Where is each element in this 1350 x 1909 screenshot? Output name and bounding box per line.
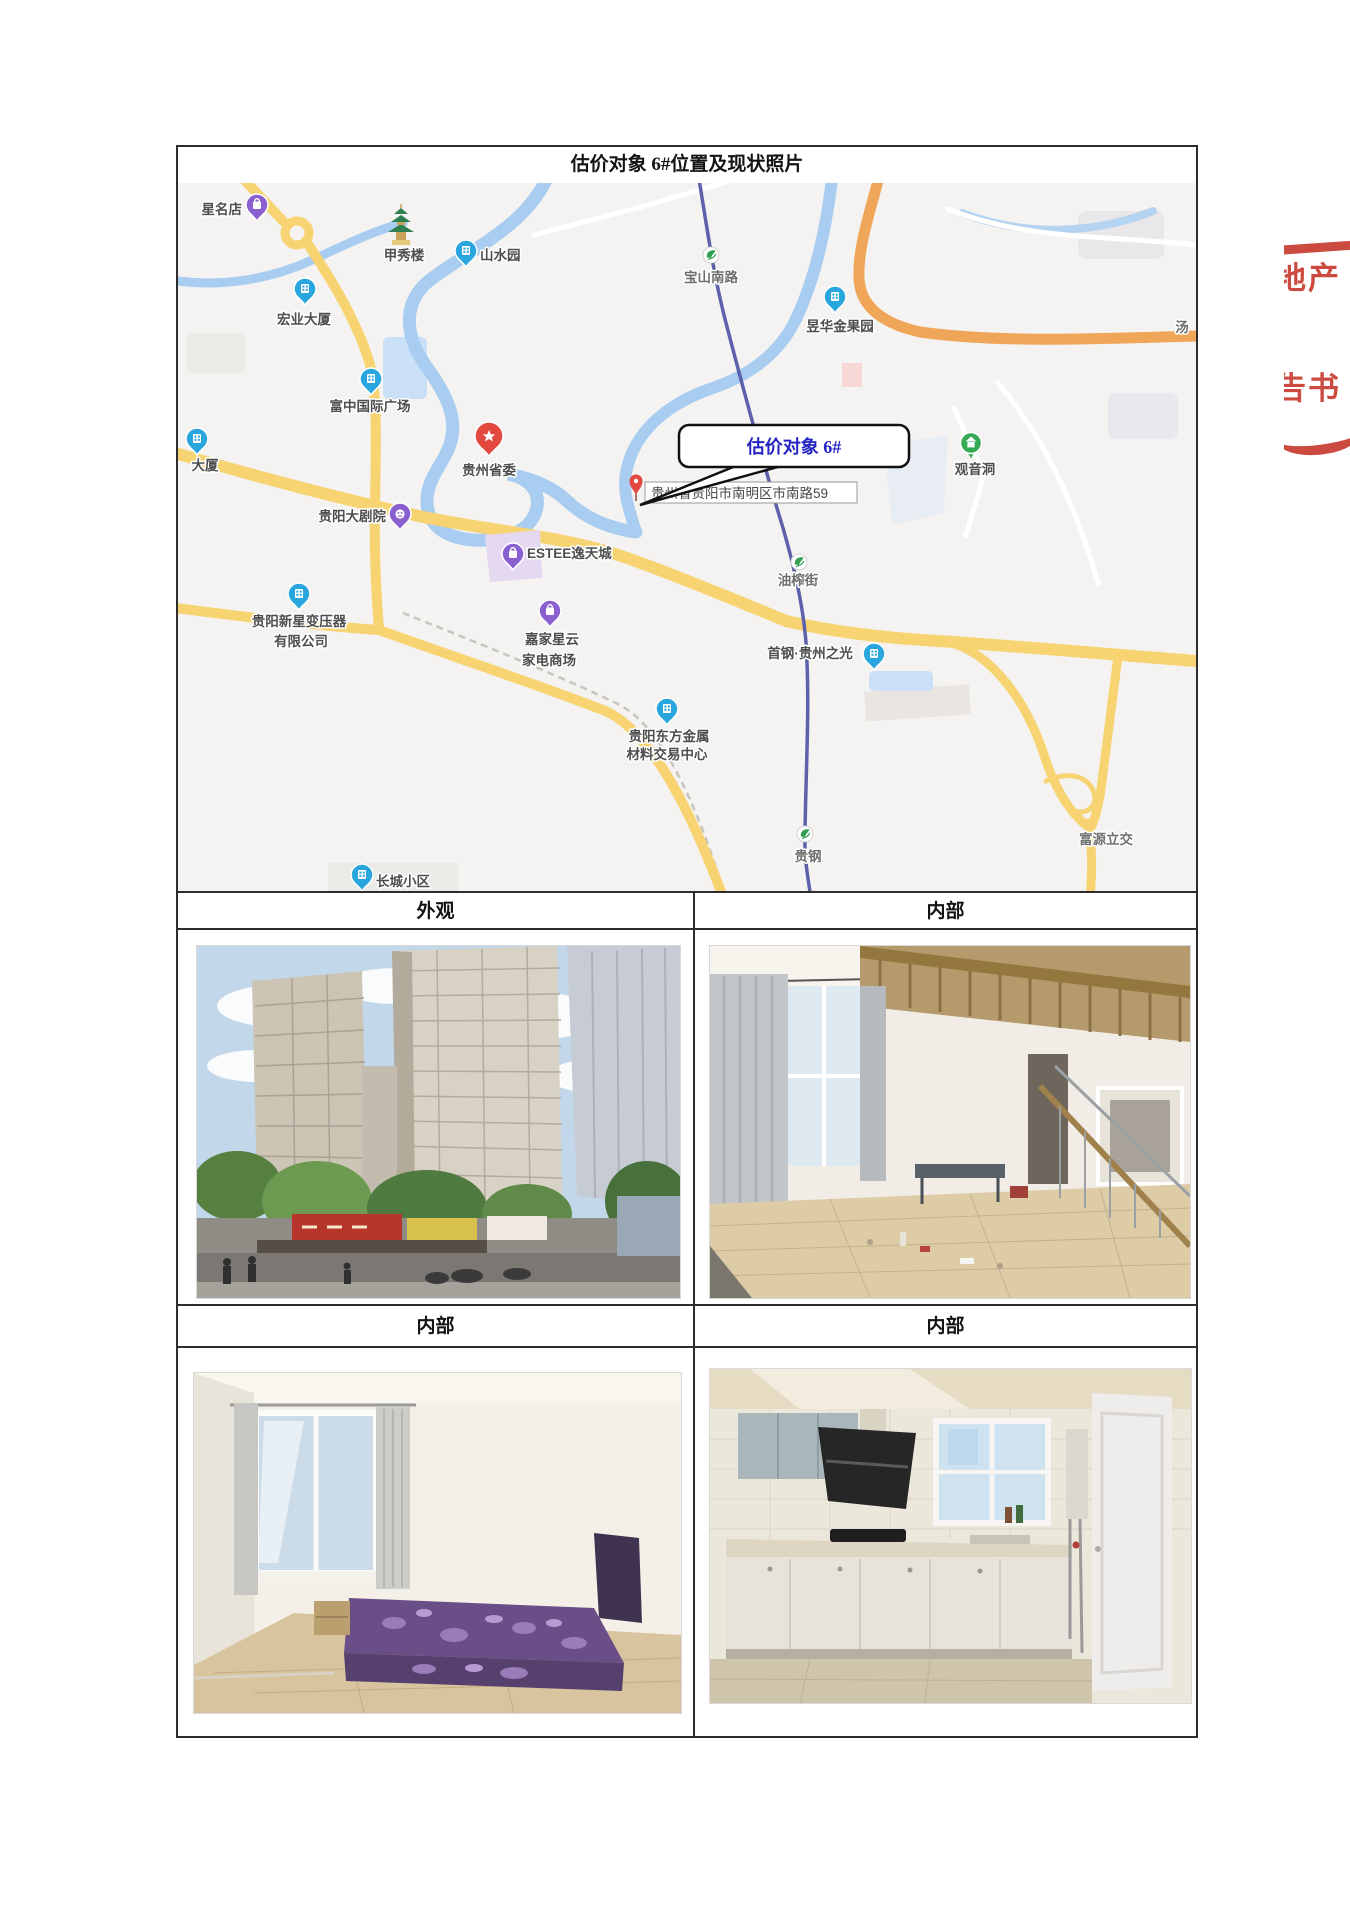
poi-label: 星名店: [202, 201, 243, 217]
gas-stove: [830, 1529, 906, 1542]
poi-label: ESTEE逸天城: [527, 545, 612, 561]
poi-label: 山水园: [480, 247, 521, 263]
building-pin-icon: [294, 278, 316, 305]
map-highway: [859, 183, 1196, 339]
photo-interior-loft: [709, 945, 1191, 1299]
poi-label: 首钢·贵州之光: [767, 645, 853, 661]
kitchen-door: [1092, 1393, 1172, 1691]
shop-pin-icon: [246, 194, 268, 221]
photo-bedroom: [193, 1372, 682, 1714]
poi-label: 材料交易中心: [627, 746, 708, 762]
photo-exterior-image: [197, 946, 680, 1298]
header-interior-3: 内部: [695, 1310, 1196, 1344]
map-roads: [178, 183, 1196, 891]
divider-rowA: [178, 1304, 1196, 1306]
store-pin-icon: [539, 600, 561, 627]
poi-label: 嘉家星云: [524, 631, 579, 647]
divider-headerA: [178, 928, 1196, 930]
photo-interior-loft-image: [710, 946, 1190, 1298]
poi-label: 贵州省委: [462, 462, 516, 478]
road-label: 宝山南路: [684, 269, 738, 285]
divider-headerB: [178, 1346, 1196, 1348]
header-interior-1: 内部: [695, 896, 1196, 928]
photo-exterior: [196, 945, 681, 1299]
header-interior-2: 内部: [178, 1310, 693, 1344]
seal-text-line1: 地产: [1284, 253, 1341, 298]
building-pin-icon: [863, 643, 885, 670]
government-pin-icon: [475, 422, 503, 456]
map-city-blocks: [186, 211, 1178, 891]
poi-label: 富中国际广场: [330, 398, 411, 414]
map-canvas: 星名店 甲秀楼 山水园 宝山南路 宏业大厦 昱华金果园 汤 富中国际广场 大厦 …: [178, 183, 1196, 891]
wood-floor: [710, 1184, 1190, 1298]
poi-label: 宏业大厦: [277, 311, 331, 327]
building-pin-icon: [824, 286, 846, 313]
bedroom-window: [230, 1403, 416, 1595]
photo-bedroom-image: [194, 1373, 681, 1713]
metro-station-icon: [703, 247, 719, 263]
poi-label: 贵阳新星变压器: [252, 613, 347, 629]
kitchen-window: [936, 1421, 1048, 1523]
poi-label: 贵阳东方金属: [629, 728, 710, 744]
photo-kitchen-image: [710, 1369, 1191, 1703]
page-title: 估价对象 6#位置及现状照片: [178, 150, 1196, 180]
road-label: 汤: [1175, 320, 1189, 335]
poi-label: 大厦: [192, 457, 219, 473]
road-label: 贵钢: [795, 848, 822, 864]
poi-label: 观音洞: [955, 461, 996, 477]
callout-text: 估价对象 6#: [746, 436, 842, 457]
poi-label: 长城小区: [376, 873, 430, 889]
photo-kitchen: [709, 1368, 1192, 1704]
poi-label: 甲秀楼: [384, 247, 425, 263]
seal-border-arc: [1284, 411, 1350, 458]
poi-label: 有限公司: [274, 633, 328, 649]
temple-pin-icon: [961, 433, 982, 459]
red-seal-fragment: 地产 告书: [1284, 203, 1350, 458]
poi-label: 家电商场: [522, 652, 576, 668]
theater-pin-icon: [389, 503, 411, 530]
divider-map-bottom: [178, 891, 1196, 893]
company-pin-icon: [288, 583, 310, 610]
poi-label: 昱华金果园: [806, 318, 874, 334]
counter-and-cabinets: [726, 1529, 1072, 1659]
report-page: 估价对象 6#位置及现状照片 外观 内部 内部 内部: [0, 0, 1350, 1909]
road-label: 油榨街: [778, 572, 819, 588]
map-metro-line: [698, 183, 811, 891]
metro-station-icon: [797, 826, 813, 842]
seal-text-line2: 告书: [1284, 363, 1341, 408]
location-map: 星名店 甲秀楼 山水园 宝山南路 宏业大厦 昱华金果园 汤 富中国际广场 大厦 …: [178, 183, 1196, 891]
header-exterior: 外观: [178, 896, 693, 928]
metro-station-icon: [791, 554, 807, 570]
poi-label: 贵阳大剧院: [319, 508, 387, 524]
road-label: 富源立交: [1079, 831, 1133, 847]
market-pin-icon: [656, 698, 678, 725]
sink: [970, 1535, 1030, 1544]
